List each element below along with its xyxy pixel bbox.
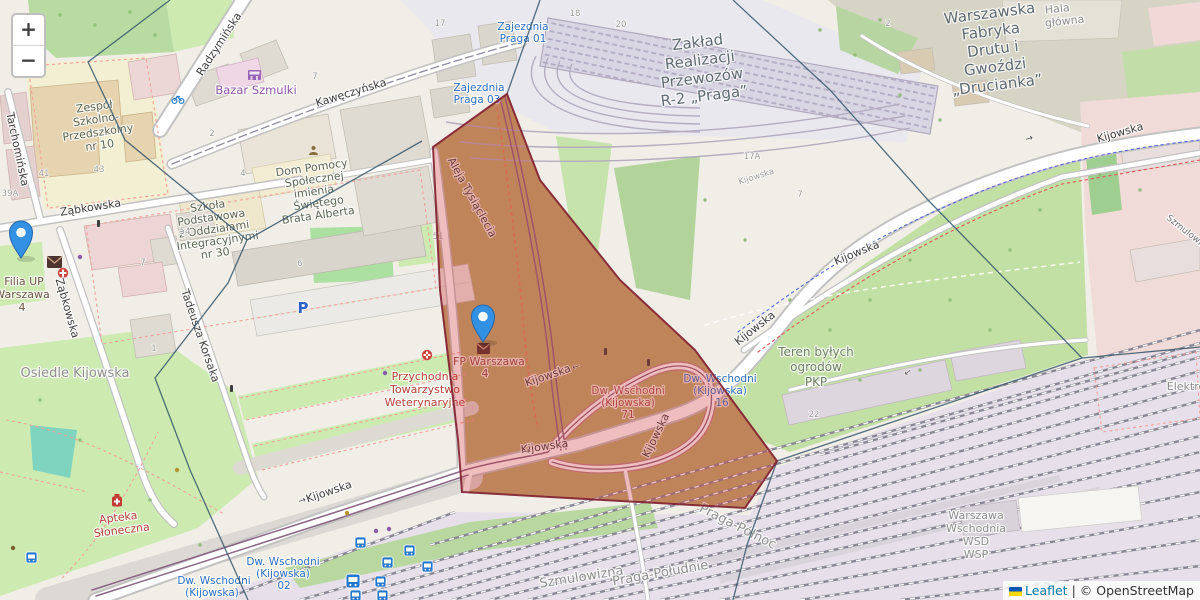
area-line: WSD: [963, 535, 989, 548]
parking-symbol: P: [298, 299, 309, 317]
marketplace-icon: [248, 70, 261, 80]
housenumber: 17A: [744, 152, 761, 162]
map-tiles: Radzymińska Kawęczyńska Tarchomińska Ząb…: [0, 0, 1200, 600]
zoom-in-button[interactable]: +: [13, 15, 44, 45]
housenumber: 54: [180, 227, 191, 237]
area-label-osiedle: Osiedle Kijowska: [21, 366, 130, 381]
area-label-elektro: Elektro: [1167, 380, 1200, 393]
housenumber: 2: [885, 19, 890, 29]
transit-line: Praga 01: [500, 33, 547, 45]
poi-label-bazar: Bazar Szmulki: [215, 83, 296, 97]
post-office-icon: [47, 256, 62, 268]
housenumber: 6: [297, 259, 302, 269]
housenumber: 4: [240, 169, 245, 179]
area-line: Wschodnia: [946, 522, 1006, 535]
area-line: Teren byłych: [777, 345, 854, 359]
area-line: ogrodów: [790, 360, 842, 374]
transit-line: (Kijowska): [256, 568, 310, 580]
housenumber: 7: [797, 190, 802, 200]
housenumber: 41: [39, 169, 50, 179]
zoom-out-button[interactable]: −: [13, 45, 44, 76]
map-canvas[interactable]: Radzymińska Kawęczyńska Tarchomińska Ząb…: [0, 0, 1200, 600]
transit-stop-label-zajezdnia-praga-01: Zajezdnia Praga 01: [497, 21, 548, 45]
area-line: Warszawa: [948, 509, 1003, 522]
oneway-arrow: →: [1024, 133, 1035, 145]
area-line: PKP: [805, 375, 827, 389]
attribution-separator: |: [1072, 583, 1076, 598]
housenumber: 7: [140, 258, 145, 268]
veterinary-icon: [422, 350, 432, 360]
transit-line: (Kijowska): [185, 587, 239, 599]
area-line: WSP: [964, 548, 989, 561]
housenumber: Kijowska: [737, 167, 775, 188]
housenumber: 20: [616, 20, 627, 30]
transit-line: Zajezdnia: [453, 82, 504, 94]
ukraine-flag-icon: [1009, 587, 1022, 596]
housenumber: 39A: [2, 189, 19, 199]
poi-line: 4: [19, 301, 26, 314]
poi-line: Warszawa: [0, 288, 50, 301]
housenumber: 7: [312, 72, 317, 82]
osm-credit-link[interactable]: © OpenStreetMap: [1080, 583, 1194, 598]
housenumber: 18: [570, 9, 581, 19]
poi-line: Filia UP: [4, 275, 44, 288]
poi-label-filia-up: Filia UP Warszawa 4: [0, 275, 50, 314]
transit-line: Zajezdnia: [497, 21, 548, 33]
zoom-control: + −: [11, 13, 46, 78]
transit-line: 02: [277, 580, 290, 592]
leaflet-link[interactable]: Leaflet: [1025, 583, 1068, 598]
housenumber: 22: [809, 410, 820, 420]
housenumber: 2: [209, 129, 214, 139]
transit-line: Dw. Wschodni: [246, 556, 319, 568]
housenumber: 43: [94, 165, 105, 175]
poi-line: Towarzystwo: [389, 383, 460, 396]
housenumber: 1: [151, 344, 156, 354]
housenumber: 17: [435, 19, 446, 29]
poi-line: nr 30: [200, 245, 231, 262]
poi-line: Przychodnia: [392, 370, 459, 383]
attribution-bar: Leaflet | © OpenStreetMap: [1003, 581, 1200, 600]
